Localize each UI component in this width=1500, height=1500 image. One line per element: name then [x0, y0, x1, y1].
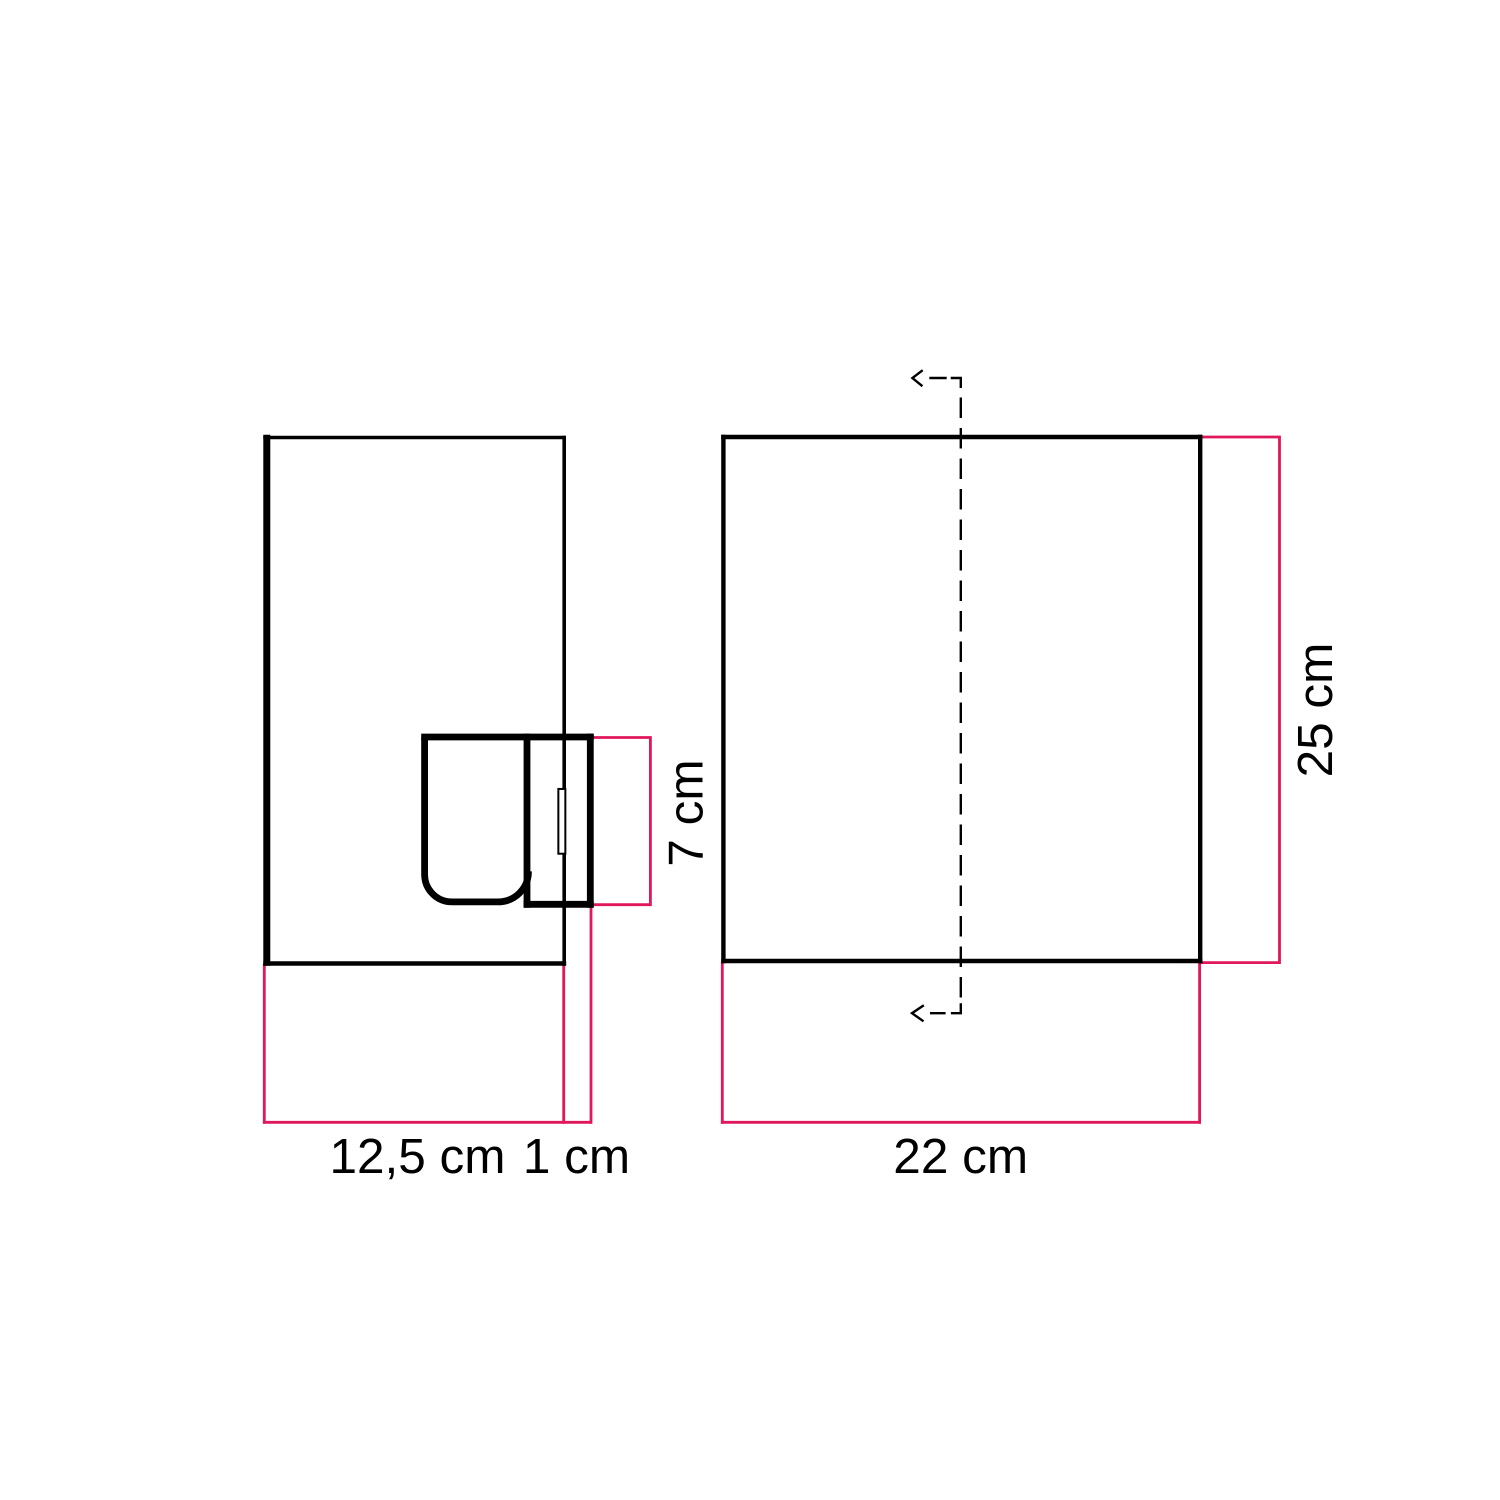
svg-text:1 cm: 1 cm — [523, 1129, 630, 1184]
svg-text:7 cm: 7 cm — [659, 759, 714, 866]
svg-text:12,5 cm: 12,5 cm — [329, 1129, 505, 1184]
svg-text:25 cm: 25 cm — [1288, 643, 1343, 778]
svg-text:22 cm: 22 cm — [893, 1129, 1028, 1184]
